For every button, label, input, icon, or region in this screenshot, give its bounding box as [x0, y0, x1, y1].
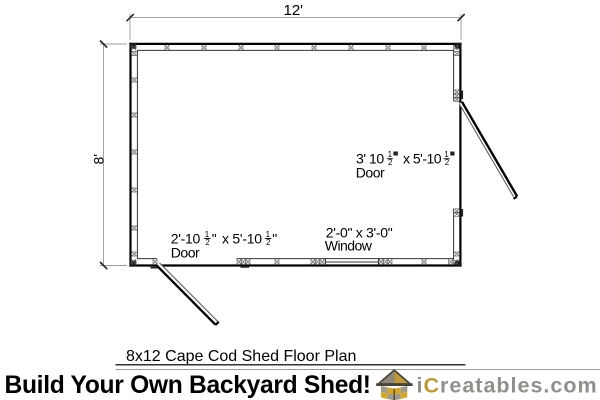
svg-text:Window: Window: [325, 238, 373, 254]
svg-text:": ": [272, 230, 277, 246]
svg-text:Door: Door: [171, 244, 200, 260]
svg-text:": ": [212, 230, 217, 246]
svg-text:2: 2: [388, 158, 393, 167]
svg-text:Build Your Own Backyard Shed!: Build Your Own Backyard Shed!: [5, 372, 371, 399]
svg-text:8': 8': [91, 154, 107, 164]
svg-text:x 5'-10: x 5'-10: [403, 151, 442, 167]
svg-text:2: 2: [266, 238, 271, 247]
svg-text:12': 12': [284, 2, 304, 19]
svg-text:iCreatables.com: iCreatables.com: [417, 373, 598, 397]
svg-text:x 5'-10: x 5'-10: [222, 230, 262, 246]
svg-text:8x12 Cape Cod Shed Floor Plan: 8x12 Cape Cod Shed Floor Plan: [126, 348, 356, 365]
svg-text:Door: Door: [356, 165, 385, 181]
svg-text:2: 2: [205, 238, 210, 247]
svg-text:2: 2: [445, 158, 450, 167]
